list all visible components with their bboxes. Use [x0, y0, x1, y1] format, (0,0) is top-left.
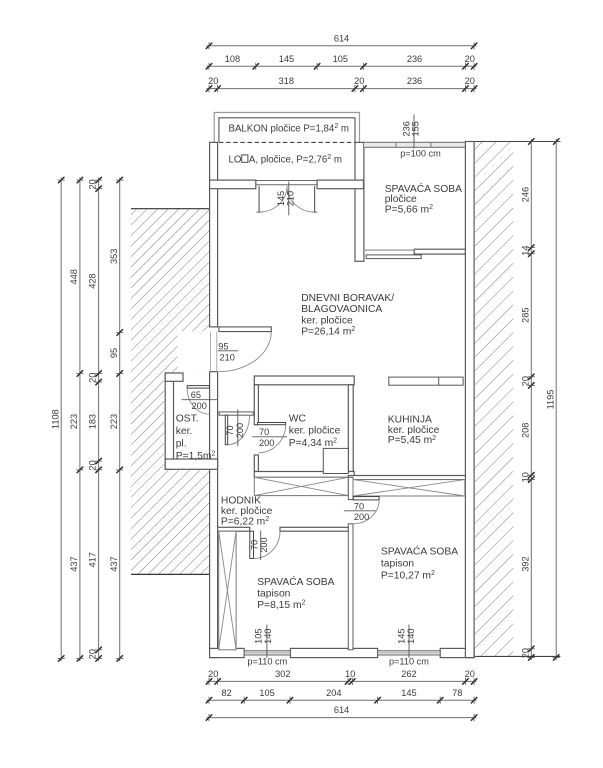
svg-text:ker.: ker. [176, 426, 193, 437]
svg-text:P=26,14 m2: P=26,14 m2 [301, 326, 355, 337]
svg-text:210: 210 [286, 191, 296, 206]
svg-text:145: 145 [279, 54, 294, 64]
svg-text:437: 437 [69, 556, 79, 571]
svg-text:tapison: tapison [257, 589, 290, 600]
svg-text:20: 20 [465, 669, 475, 679]
svg-text:78: 78 [452, 688, 462, 698]
svg-text:105: 105 [254, 629, 264, 644]
svg-text:262: 262 [401, 669, 416, 679]
svg-text:82: 82 [221, 688, 231, 698]
svg-text:BALKON pločice P=1,842 m: BALKON pločice P=1,842 m [229, 123, 350, 134]
svg-text:P=8,15 m2: P=8,15 m2 [257, 600, 305, 611]
svg-text:P=6,22 m2: P=6,22 m2 [221, 516, 269, 527]
svg-text:70: 70 [259, 427, 269, 437]
svg-text:108: 108 [225, 54, 240, 64]
svg-text:200: 200 [235, 423, 245, 438]
svg-text:145: 145 [401, 688, 416, 698]
svg-text:223: 223 [109, 414, 119, 429]
svg-text:145: 145 [276, 191, 286, 206]
svg-text:105: 105 [333, 54, 348, 64]
svg-text:223: 223 [69, 414, 79, 429]
svg-text:20: 20 [520, 376, 530, 386]
svg-text:70: 70 [249, 540, 259, 550]
svg-text:302: 302 [275, 669, 290, 679]
svg-text:P=5,45 m2: P=5,45 m2 [388, 435, 436, 446]
svg-text:20: 20 [465, 76, 475, 86]
svg-text:20: 20 [354, 76, 364, 86]
svg-text:10: 10 [520, 472, 530, 482]
svg-text:LO: LO [229, 154, 242, 165]
svg-text:P=4,34 m2: P=4,34 m2 [289, 438, 337, 449]
svg-text:SPAVAĆA SOBA: SPAVAĆA SOBA [257, 575, 334, 588]
svg-text:70: 70 [354, 501, 364, 511]
svg-text:pločice: pločice [385, 194, 417, 205]
svg-text:OST.: OST. [176, 413, 199, 424]
svg-text:pl.: pl. [176, 439, 187, 450]
svg-text:183: 183 [88, 414, 98, 429]
svg-text:70: 70 [225, 425, 235, 435]
svg-text:DNEVNI BORAVAK/: DNEVNI BORAVAK/ [301, 293, 394, 304]
svg-text:285: 285 [520, 308, 530, 323]
svg-text:448: 448 [69, 269, 79, 284]
svg-text:200: 200 [259, 438, 274, 448]
svg-text:246: 246 [520, 187, 530, 202]
svg-text:210: 210 [220, 352, 235, 362]
svg-text:236: 236 [407, 76, 422, 86]
svg-text:95: 95 [109, 348, 119, 358]
svg-text:14: 14 [520, 245, 530, 255]
svg-text:p=100 cm: p=100 cm [400, 149, 441, 159]
svg-text:140: 140 [263, 629, 273, 644]
svg-text:1195: 1195 [545, 390, 555, 410]
svg-text:353: 353 [109, 249, 119, 264]
svg-text:tapison: tapison [381, 559, 414, 570]
svg-text:105: 105 [259, 688, 274, 698]
svg-text:WC: WC [289, 413, 307, 424]
svg-text:20: 20 [88, 649, 98, 659]
svg-text:20: 20 [88, 179, 98, 189]
svg-text:428: 428 [88, 273, 98, 288]
svg-text:417: 417 [88, 552, 98, 567]
svg-text:140: 140 [406, 629, 416, 644]
svg-text:10: 10 [345, 669, 355, 679]
svg-text:155: 155 [411, 121, 421, 136]
svg-text:p=110 cm: p=110 cm [389, 656, 429, 666]
svg-text:P=5,66 m2: P=5,66 m2 [385, 204, 433, 215]
svg-text:65: 65 [191, 390, 201, 400]
svg-text:145: 145 [396, 629, 406, 644]
svg-text:20: 20 [88, 460, 98, 470]
svg-text:614: 614 [334, 705, 349, 715]
svg-text:20: 20 [465, 54, 475, 64]
svg-text:614: 614 [334, 33, 349, 43]
svg-text:200: 200 [259, 537, 269, 552]
svg-text:p=110 cm: p=110 cm [247, 656, 287, 666]
svg-text:P=10,27 m2: P=10,27 m2 [381, 570, 435, 581]
svg-text:95: 95 [218, 341, 228, 351]
svg-text:20: 20 [208, 76, 218, 86]
svg-text:20: 20 [208, 669, 218, 679]
svg-text:204: 204 [326, 688, 341, 698]
svg-text:200: 200 [354, 512, 369, 522]
svg-text:20: 20 [520, 648, 530, 658]
svg-text:20: 20 [88, 373, 98, 383]
svg-text:318: 318 [279, 76, 294, 86]
svg-text:P=1,5m2: P=1,5m2 [176, 451, 216, 462]
svg-text:SPAVAĆA SOBA: SPAVAĆA SOBA [381, 545, 458, 558]
svg-text:ker. pločice: ker. pločice [301, 315, 353, 326]
svg-text:ker. pločice: ker. pločice [289, 426, 341, 437]
svg-text:236: 236 [407, 54, 422, 64]
svg-text:200: 200 [192, 401, 207, 411]
svg-text:1108: 1108 [50, 409, 60, 429]
svg-text:392: 392 [520, 556, 530, 571]
svg-text:437: 437 [109, 556, 119, 571]
svg-text:208: 208 [520, 423, 530, 438]
svg-text:BLAGOVAONICA: BLAGOVAONICA [301, 304, 382, 315]
